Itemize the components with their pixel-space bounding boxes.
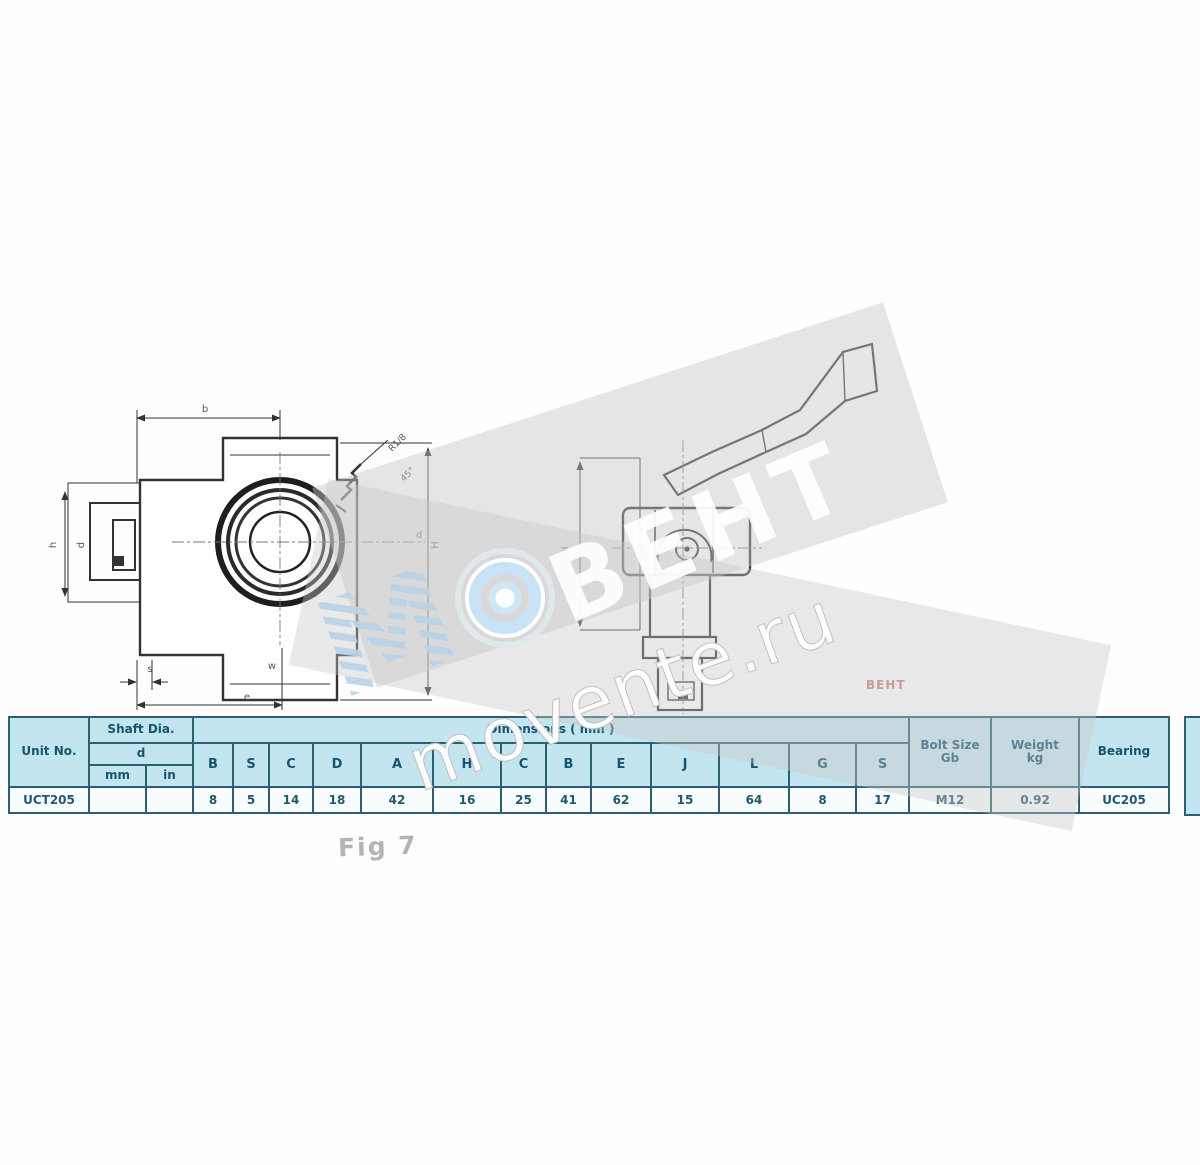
dim-letter: S (857, 744, 910, 788)
dim-letter: B (547, 744, 592, 788)
dim-value: 64 (720, 788, 790, 814)
front-view: b H h d s w e d R1/8 45° (48, 404, 441, 710)
dim-letter: D (314, 744, 362, 788)
dim-value: 8 (194, 788, 234, 814)
table-edge-sliver (1184, 716, 1200, 816)
dim-letter: L (720, 744, 790, 788)
svg-text:h: h (48, 542, 59, 548)
col-header-unit-no: Unit No. (10, 718, 90, 788)
side-view: H (560, 344, 877, 714)
svg-text:b: b (202, 404, 208, 415)
bearing-value: UC205 (1080, 788, 1170, 814)
svg-text:d: d (76, 542, 87, 548)
svg-text:d: d (416, 530, 422, 541)
shaft-unit-in: in (147, 766, 194, 788)
weight-value: 0.92 (992, 788, 1080, 814)
dim-letter: E (592, 744, 652, 788)
dim-letter: H (434, 744, 502, 788)
dim-letter: A (362, 744, 434, 788)
bolt-size-value: M12 (910, 788, 992, 814)
svg-text:H: H (430, 541, 441, 549)
take-up-arm (664, 344, 877, 495)
dim-letter: S (234, 744, 270, 788)
dim-value: 15 (652, 788, 720, 814)
dim-letter: C (270, 744, 314, 788)
col-header-dimensions: Dimensions ( mm ) (194, 718, 910, 744)
dim-value: 62 (592, 788, 652, 814)
dim-value: 14 (270, 788, 314, 814)
figure-caption: Fig 7 (338, 831, 419, 863)
catalog-page: b H h d s w e d R1/8 45° (0, 0, 1200, 1165)
dim-value: 5 (234, 788, 270, 814)
svg-text:H: H (560, 546, 571, 554)
col-header-weight: Weight kg (992, 718, 1080, 788)
shaft-unit-mm: mm (90, 766, 147, 788)
svg-text:e: e (244, 692, 250, 703)
unit-no-value: UCT205 (10, 788, 90, 814)
slide-nub (114, 556, 124, 566)
col-header-shaft-dia: Shaft Dia. (90, 718, 194, 744)
shaft-mm-value (90, 788, 147, 814)
svg-text:s: s (147, 664, 152, 675)
svg-text:45°: 45° (399, 466, 417, 484)
dim-value: 41 (547, 788, 592, 814)
shaft-symbol: d (90, 744, 194, 766)
dim-value: 18 (314, 788, 362, 814)
flange (623, 508, 750, 575)
dim-value: 17 (857, 788, 910, 814)
shaft-in-value (147, 788, 194, 814)
dim-letter: G (790, 744, 857, 788)
dim-letter: B (194, 744, 234, 788)
svg-text:w: w (268, 661, 276, 672)
technical-drawing: b H h d s w e d R1/8 45° (0, 0, 1200, 1165)
red-stamp: ВЕНТ (866, 678, 906, 692)
dim-value: 8 (790, 788, 857, 814)
col-header-bearing: Bearing (1080, 718, 1170, 788)
dim-letter: C (502, 744, 547, 788)
dimension-table: Unit No. Shaft Dia. d mm in Dimensions (… (8, 716, 1170, 814)
col-header-bolt-size: Bolt Size Gb (910, 718, 992, 788)
dim-value: 25 (502, 788, 547, 814)
dim-letter: J (652, 744, 720, 788)
dim-value: 42 (362, 788, 434, 814)
dim-value: 16 (434, 788, 502, 814)
